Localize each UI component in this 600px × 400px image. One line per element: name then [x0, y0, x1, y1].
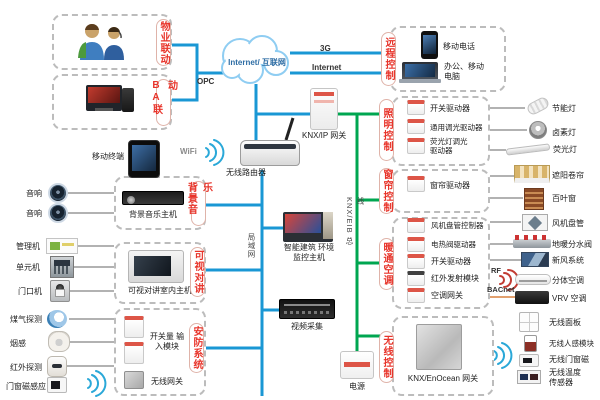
hvac-label: 暖通空调: [379, 238, 394, 290]
wifi-waves-enocean: [494, 343, 511, 368]
wireless-pir-icon: [524, 335, 537, 352]
wireless-magnet-icon: [519, 354, 539, 367]
input-module-label: 开关量 输入模块: [148, 332, 186, 351]
halogen-lamp-icon: [529, 121, 547, 139]
property-linkage-label: 物业联动: [156, 19, 171, 66]
door-station-label: 门口机: [18, 287, 42, 297]
smart-building-system-diagram: 物业联动 BA联动 Internet/ 互联网 3G Internet OPC …: [0, 0, 600, 400]
pir-label: 红外探测: [10, 363, 42, 373]
fancoil-icon: [522, 214, 548, 231]
wireless-pir-label: 无线人感模块: [549, 339, 594, 348]
speaker-icon-2: [48, 203, 68, 223]
switch-actuator-label: 开关驱动器: [430, 104, 488, 114]
fancoil-controller-icon: [407, 218, 425, 233]
door-magnet-icon: [47, 377, 67, 393]
wifi-label: WiFi: [180, 147, 197, 156]
mgmt-machine-icon: [46, 238, 78, 254]
wireless-temp-icon: [517, 370, 541, 384]
mobile-phone-icon: [421, 31, 438, 59]
ir-emitter-label: 红外发射模块: [431, 274, 491, 284]
gas-detector-icon: [47, 310, 67, 328]
router-antenna: [286, 118, 293, 140]
curtain-actuator-label: 窗帘驱动器: [430, 181, 488, 191]
router-vents: [244, 144, 296, 149]
door-magnet-label: 门窗磁感应: [6, 382, 46, 392]
manifold-icon: [513, 239, 551, 248]
link-opc-label: OPC: [197, 77, 214, 86]
security-label: 安防系统: [189, 323, 204, 373]
unit-label: 单元机: [16, 263, 40, 273]
people-icon: [76, 22, 128, 62]
mobile-phone-label: 移动电话: [443, 42, 475, 52]
curtain-actuator-icon: [407, 176, 425, 192]
switch-actuator-icon: [407, 100, 425, 115]
hvac-switch-actuator-icon: [407, 254, 425, 269]
cloud-label: Internet/ 互联网: [222, 58, 292, 68]
lan-label: 局域网: [246, 233, 257, 267]
mobile-terminal-label: 移动终端: [92, 152, 124, 162]
intercom-host-icon: [128, 250, 184, 283]
speaker-label-1: 音响: [26, 189, 42, 199]
video-capture-icon: [279, 299, 335, 319]
wifi-waves-security: [88, 371, 105, 396]
awning-icon: [514, 165, 550, 183]
knx-bus-label: KNX/EIB 总线: [344, 197, 366, 251]
speaker-icon-1: [48, 183, 68, 203]
enocean-gateway-label: KNX/EnOcean 网关: [398, 374, 488, 384]
gas-label: 煤气探测: [10, 315, 42, 325]
manifold-label: 地暖分水阀: [552, 240, 592, 250]
wireless-panel-icon: [519, 312, 539, 332]
hvac-switch-actuator-label: 开关驱动器: [431, 257, 491, 267]
blinds-label: 百叶窗: [552, 194, 576, 204]
tablet-icon: [128, 140, 160, 178]
ba-linkage-label: BA联动: [156, 79, 171, 126]
split-ac-icon: [515, 274, 551, 285]
monitoring-host-icon: [283, 212, 333, 242]
freshair-icon: [521, 252, 549, 267]
bgm-host-icon: [122, 191, 184, 205]
input-module-icon-2: [124, 342, 144, 364]
vrv-ac-icon: [515, 291, 549, 304]
power-supply-label: 电源: [340, 382, 374, 392]
power-supply-icon: [340, 351, 374, 379]
fancoil-controller-label: 风机盘管控制器: [431, 221, 491, 230]
laptop-icon: [402, 62, 438, 83]
halogen-lamp-label: 卤素灯: [552, 128, 576, 138]
knx-ip-gateway-icon: [310, 88, 338, 130]
wireless-gateway-icon: [124, 371, 144, 389]
ba-workstation-icon: [86, 85, 122, 111]
bgm-label: 背景音乐: [191, 181, 206, 226]
vrv-ac-label: VRV 空调: [552, 294, 587, 304]
energy-lamp-label: 节能灯: [552, 104, 576, 114]
fluorescent-dim-actuator-label: 荧光灯调光 驱动器: [430, 137, 476, 155]
unit-machine-icon: [50, 256, 74, 278]
awning-label: 遮阳卷帘: [552, 171, 584, 181]
smoke-detector-icon: [48, 331, 70, 352]
fluorescent-tube-label: 荧光灯: [553, 145, 577, 155]
pir-detector-icon: [47, 356, 67, 377]
video-capture-label: 视频采集: [281, 322, 333, 332]
dimming-actuator-label: 通用调光驱动器: [430, 123, 490, 132]
wireless-control-label: 无线控制: [379, 331, 394, 383]
laptop-label: 办公、移动 电脑: [444, 62, 486, 81]
fluorescent-dim-actuator-icon: [407, 138, 425, 154]
wireless-panel-label: 无线面板: [549, 318, 581, 328]
split-ac-label: 分体空调: [552, 276, 584, 286]
intercom-host-label: 可视对讲室内主机: [128, 286, 192, 296]
bgm-host-label: 背景音乐主机: [129, 210, 177, 220]
speaker-label-2: 音响: [26, 209, 42, 219]
router-label: 无线路由器: [226, 168, 266, 178]
enocean-gateway-icon: [416, 324, 462, 370]
dimming-actuator-icon: [407, 119, 425, 134]
rf-label: RF: [491, 266, 501, 275]
input-module-icon-1: [124, 316, 144, 338]
wireless-gateway-label: 无线网关: [151, 377, 183, 387]
freshair-label: 新风系统: [552, 256, 584, 266]
monitoring-host-label: 智能建筑 环境监控主机: [281, 243, 337, 262]
smoke-label: 烟感: [10, 339, 26, 349]
intercom-label: 可视对讲: [190, 247, 205, 297]
link-internet-label: Internet: [312, 63, 341, 72]
bacnet-label: BACnet: [487, 285, 515, 294]
ba-tower-icon: [122, 88, 134, 112]
ac-gateway-label: 空调网关: [431, 291, 491, 301]
door-station-icon: [50, 280, 70, 302]
remote-control-label: 远程控制: [381, 32, 396, 86]
mgmt-label: 管理机: [16, 242, 40, 252]
wireless-magnet-label: 无线门窗磁: [549, 355, 589, 365]
valve-actuator-icon: [407, 237, 425, 252]
fancoil-label: 风机盘管: [552, 219, 584, 229]
blinds-icon: [524, 188, 544, 210]
link-3g-label: 3G: [320, 44, 331, 53]
valve-actuator-label: 电热阀驱动器: [431, 240, 491, 249]
knx-ip-gateway-label: KNX/IP 网关: [302, 131, 354, 141]
ac-gateway-icon: [407, 288, 425, 303]
curtain-label: 窗帘控制: [379, 168, 394, 214]
ir-emitter-icon: [407, 271, 425, 286]
lighting-label: 照明控制: [379, 99, 394, 161]
wifi-waves-router: [206, 140, 223, 165]
wireless-temp-label: 无线温度 传感器: [549, 368, 589, 387]
